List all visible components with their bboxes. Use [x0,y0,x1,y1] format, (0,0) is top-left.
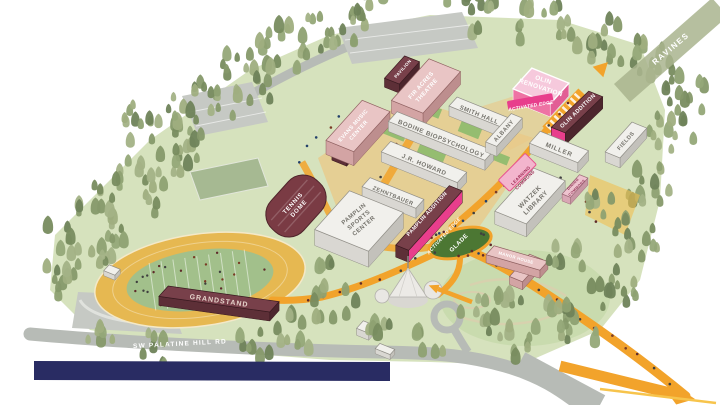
tree-icon [305,12,311,22]
tree-icon [378,0,388,4]
tree-icon [667,96,673,106]
tree-icon [613,16,622,32]
tree-icon [97,183,104,194]
tree-icon [698,103,705,115]
tree-icon [365,0,373,11]
tree-icon [634,33,642,47]
tree-icon [284,16,294,34]
person-dot [482,254,485,257]
person-dot [298,161,301,164]
person-dot [558,113,561,116]
tree-icon [243,63,249,73]
tree-icon [564,14,571,27]
person-dot [414,257,417,260]
person-dot [538,289,541,292]
person-dot [360,282,363,285]
tree-icon [696,74,704,88]
tree-icon [689,131,697,145]
tree-icon [43,215,54,233]
person-dot [338,115,341,118]
person-dot [339,291,342,294]
person-dot [400,269,403,272]
tree-icon [601,24,608,37]
tree-icon [274,15,284,33]
tree-icon [172,110,178,121]
tree-icon [605,11,613,26]
person-dot [669,383,672,386]
person-dot [471,250,474,253]
person-dot [307,299,310,302]
tree-icon [166,104,171,114]
person-dot [624,347,627,350]
navy-band [34,361,390,381]
tree-icon [665,183,672,196]
tree-icon [675,85,684,101]
tree-icon [154,114,162,129]
tree-icon [145,110,153,125]
tree-icon [126,132,135,148]
tree-icon [668,144,674,154]
tree-icon [92,180,98,191]
tree-icon [125,154,132,166]
person-dot [379,176,382,179]
tree-icon [443,0,451,8]
tree-icon [222,45,231,61]
person-dot [547,124,550,127]
person-dot [330,126,333,129]
person-dot [379,278,382,281]
tree-icon [42,258,51,274]
tree-icon [669,75,675,85]
map-canvas: PAVILIONFIR ACRESTHEATREEVANS MUSICCENTE… [0,0,720,405]
person-dot [588,211,591,214]
person-dot [472,212,475,215]
tree-icon [674,66,684,84]
person-dot [653,367,656,370]
tree-icon [266,26,273,38]
person-dot [636,353,639,356]
tree-icon [214,84,221,96]
tree-icon [541,8,547,18]
person-dot [315,136,318,139]
tree-icon [298,26,308,43]
person-dot [611,334,614,337]
tree-icon [171,92,176,102]
tree-icon [317,11,323,22]
person-dot [306,145,309,148]
tree-icon [234,52,239,62]
tree-icon [207,86,214,98]
person-dot [495,191,498,194]
tree-icon [339,23,346,35]
tree-icon [255,32,265,49]
person-dot [595,220,598,223]
tree-icon [149,133,155,144]
tree-icon [557,16,565,31]
person-dot [567,102,570,105]
tree-icon [354,3,361,16]
tree-icon [246,47,254,61]
tree-icon [130,99,136,109]
campus-map: PAVILIONFIR ACRESTHEATREEVANS MUSICCENTE… [0,0,720,405]
person-dot [485,200,488,203]
band-layer [34,361,390,381]
